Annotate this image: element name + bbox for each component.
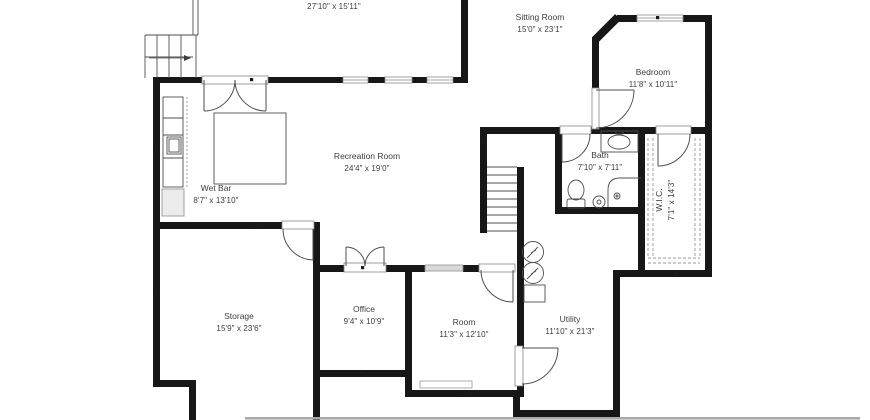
staircase-center bbox=[487, 167, 517, 231]
label-bath: Bath 7'10" x 7'11" bbox=[578, 150, 623, 173]
shower bbox=[608, 178, 641, 207]
wet-bar-counter bbox=[163, 97, 183, 187]
walls bbox=[153, 0, 712, 420]
label-wic: W.I.C. 7'1" x 14'3" bbox=[654, 180, 677, 221]
stair-direction-arrow bbox=[184, 55, 191, 61]
bath-sink bbox=[608, 135, 630, 149]
label-sitting-room: Sitting Room 15'0" x 23'1" bbox=[516, 12, 565, 35]
floor-plan: 27'10" x 15'11" Sitting Room 15'0" x 23'… bbox=[0, 0, 870, 420]
appliance-box bbox=[162, 189, 184, 216]
wic-door-casing bbox=[656, 126, 691, 134]
watermark-strip bbox=[245, 417, 860, 420]
shower-head bbox=[614, 193, 620, 199]
bedroom-door-casing bbox=[592, 88, 599, 129]
label-bedroom: Bedroom 11'8" x 10'11" bbox=[629, 67, 678, 90]
label-top-room: 27'10" x 15'11" bbox=[307, 1, 361, 12]
label-office: Office 9'4" x 10'9" bbox=[344, 304, 385, 327]
label-utility: Utility 11'10" x 21'3" bbox=[545, 314, 594, 337]
floor-drain bbox=[593, 196, 605, 208]
utility-door-casing bbox=[515, 346, 523, 386]
label-wet-bar: Wet Bar 8'7" x 13'10" bbox=[193, 183, 238, 206]
label-recreation-room: Recreation Room 24'4" x 19'0" bbox=[334, 151, 400, 174]
bath-door-casing bbox=[560, 126, 591, 134]
toilet-bowl bbox=[568, 180, 584, 200]
wet-bar-island bbox=[214, 113, 286, 184]
label-storage: Storage 15'9" x 23'6" bbox=[216, 311, 261, 334]
staircase-top-left bbox=[145, 0, 198, 78]
storage-door-casing bbox=[282, 221, 314, 229]
utility-fixtures bbox=[523, 242, 546, 303]
utility-sink bbox=[524, 285, 545, 302]
floor-plan-graphics bbox=[0, 0, 870, 420]
label-room: Room 11'3" x 12'10" bbox=[439, 317, 488, 340]
room-door-casing bbox=[479, 264, 515, 272]
